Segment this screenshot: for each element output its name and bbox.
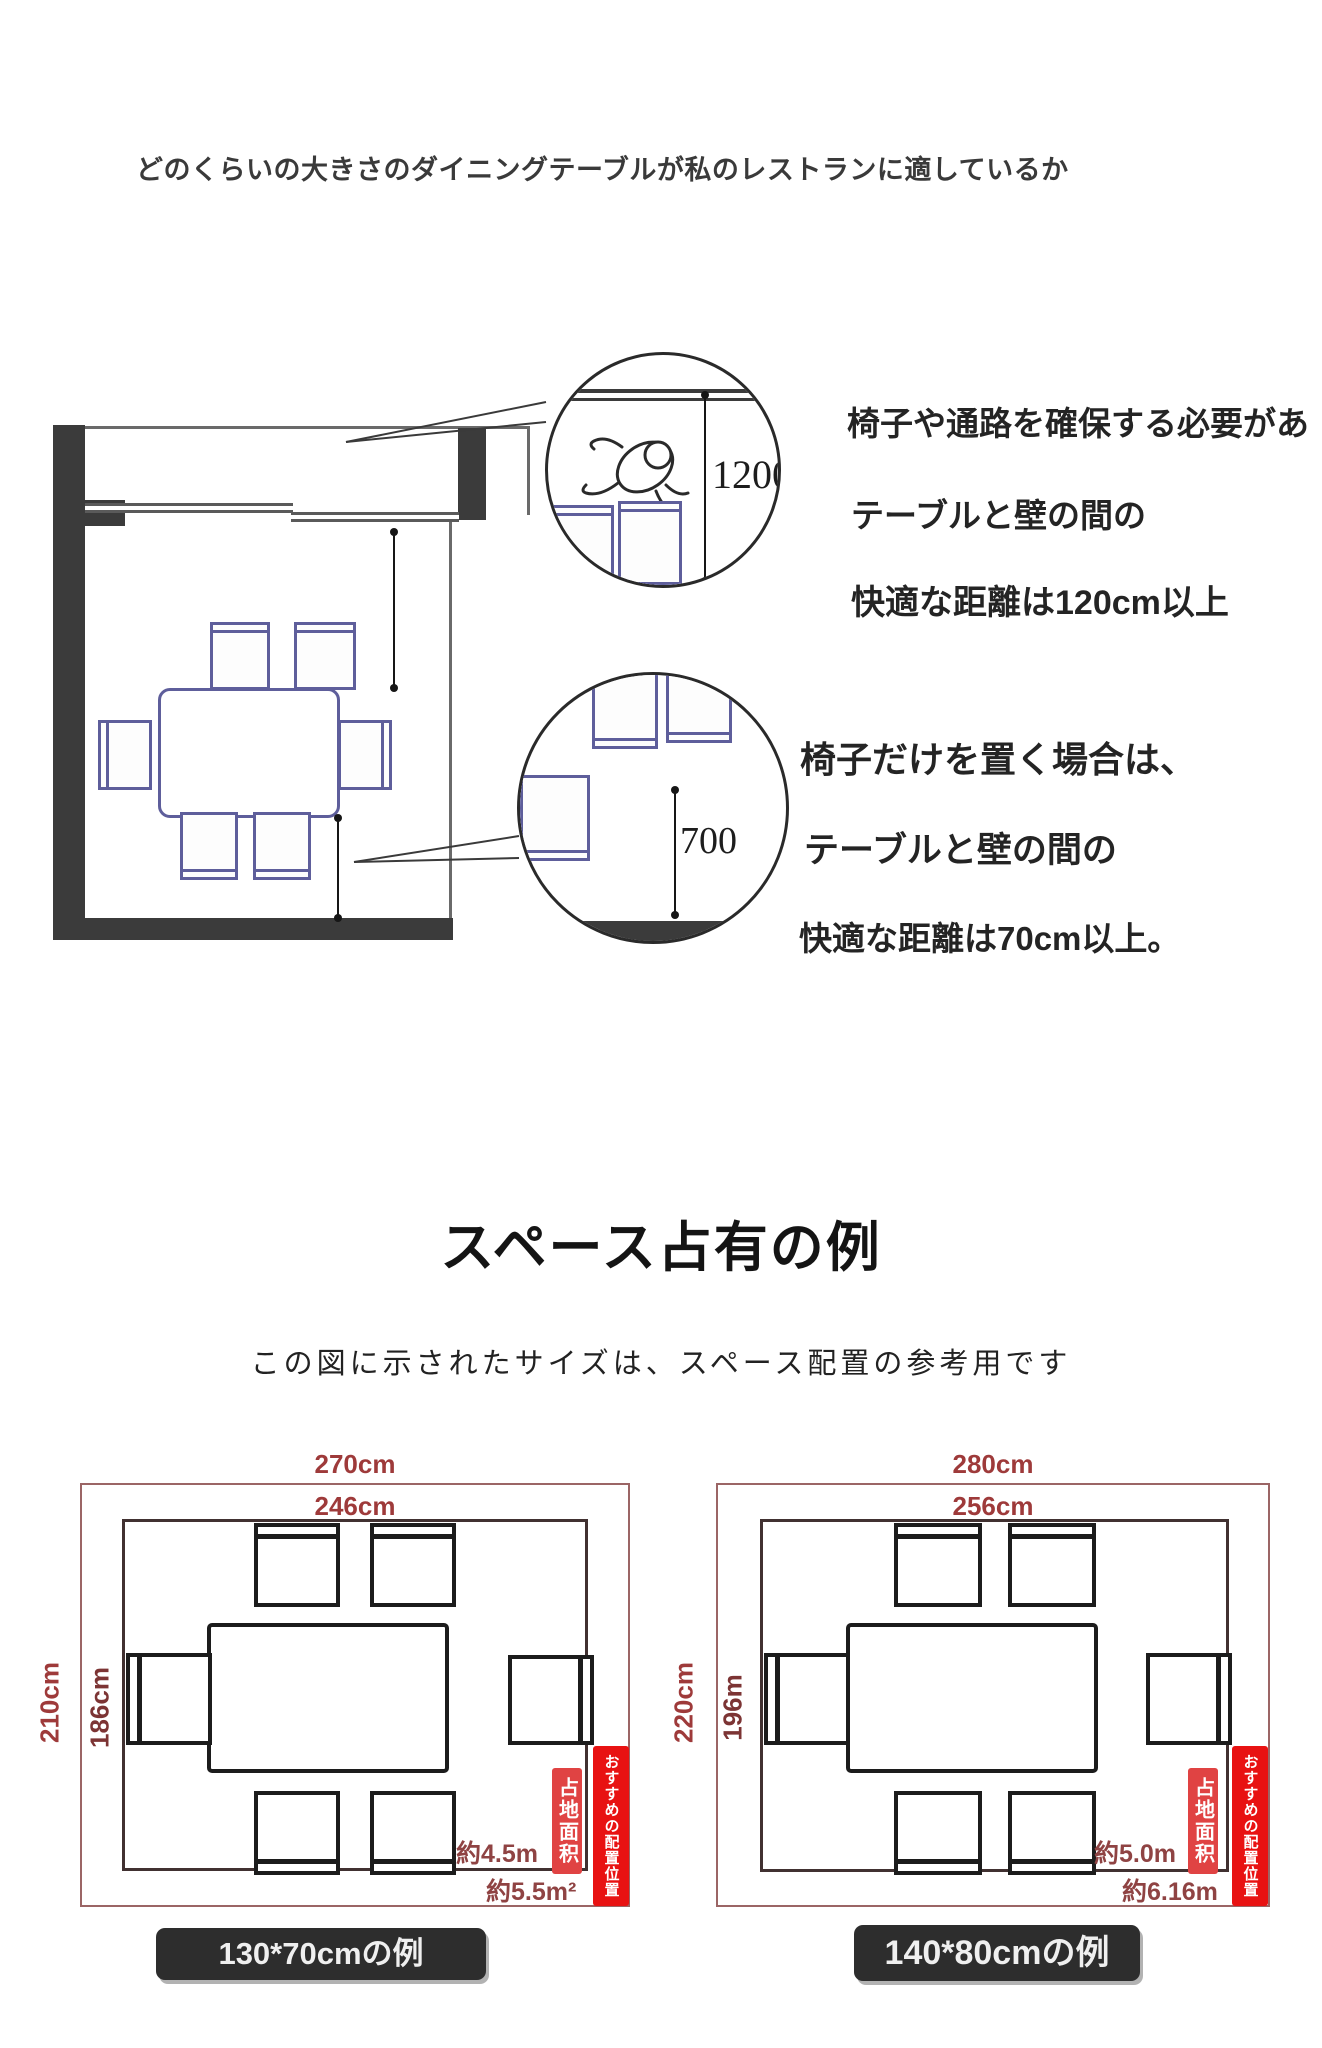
chair-top-2 <box>294 622 356 690</box>
chair-left <box>98 720 152 790</box>
chair-footprint <box>126 1653 212 1745</box>
chair-right <box>338 720 392 790</box>
chair-footprint <box>1008 1791 1096 1875</box>
wall-pillar <box>458 428 486 520</box>
space-diagram-140x80: 280cm 256cm 220cm 196m 約5.0m 約6.16m 占地面积… <box>716 1483 1270 1907</box>
inner-depth-label: 196m <box>718 1633 749 1783</box>
chair-bottom-1 <box>180 812 238 880</box>
diagram-caption: 130*70cmの例 <box>156 1928 486 1980</box>
inner-depth-label: 186cm <box>85 1633 116 1783</box>
inset-wall-clearance: 1200 <box>545 352 781 588</box>
area-label-small: 約4.5m <box>456 1834 538 1870</box>
wall-right-line <box>449 516 452 918</box>
inset-chair <box>520 775 590 861</box>
dimension-line-wall-to-table <box>393 532 395 688</box>
inset-chair-clearance: 700 <box>517 672 789 944</box>
inset-chair <box>618 501 682 585</box>
outer-width-label: 270cm <box>82 1449 628 1480</box>
chair-footprint <box>894 1791 982 1875</box>
window-line-b <box>291 512 459 522</box>
chair-footprint <box>370 1791 456 1875</box>
diagram-caption: 140*80cmの例 <box>854 1925 1140 1981</box>
chair-footprint <box>1146 1653 1232 1745</box>
note-chair-line2: テーブルと壁の間の <box>804 822 1117 873</box>
chair-footprint <box>894 1523 982 1607</box>
table-footprint <box>207 1623 449 1773</box>
dimension-label-700: 700 <box>680 819 737 863</box>
outer-depth-label: 220cm <box>669 1628 700 1778</box>
chair-footprint <box>508 1655 594 1745</box>
chair-footprint <box>254 1791 340 1875</box>
page-title: どのくらいの大きさのダイニングテーブルが私のレストランに適しているか <box>136 148 1069 187</box>
area-label-large: 約5.5m² <box>486 1872 576 1908</box>
note-aisle-line1: 椅子や通路を確保する必要があ <box>847 397 1309 445</box>
recommended-layout-badge: おすすめの配置位置 <box>1232 1746 1268 1906</box>
chair-footprint <box>764 1653 850 1745</box>
door-frame-line <box>527 427 530 515</box>
floor-area-badge: 占地面积 <box>552 1768 582 1874</box>
inset-chair <box>550 505 614 585</box>
space-diagram-130x70: 270cm 246cm 210cm 186cm 約4.5m 約5.5m² 占地面… <box>80 1483 630 1907</box>
chair-top-1 <box>210 622 270 690</box>
wall-left <box>53 425 85 940</box>
table-footprint <box>846 1623 1098 1773</box>
note-chair-line3: 快適な距離は70cm以上。 <box>799 912 1180 960</box>
note-chair-line1: 椅子だけを置く場合は、 <box>800 731 1196 783</box>
note-aisle-line3: 快適な距離は120cm以上 <box>851 575 1229 624</box>
area-label-small: 約5.0m <box>1094 1834 1176 1870</box>
inner-width-label: 246cm <box>82 1491 628 1522</box>
dimension-line-table-to-wall <box>337 818 339 918</box>
note-aisle-line2: テーブルと壁の間の <box>851 489 1146 537</box>
chair-footprint <box>1008 1523 1096 1607</box>
floor-area-badge: 占地面积 <box>1188 1768 1218 1874</box>
outer-depth-label: 210cm <box>35 1628 66 1778</box>
inset-chair <box>666 672 732 743</box>
chair-footprint <box>254 1523 340 1607</box>
dimension-label-1200: 1200 <box>712 451 781 498</box>
section-title: スペース占有の例 <box>0 1203 1322 1282</box>
recommended-layout-badge: おすすめの配置位置 <box>593 1746 629 1906</box>
inset-wall-bottom <box>517 921 789 944</box>
inset-dimension-line <box>674 790 676 915</box>
inner-width-label: 256cm <box>718 1491 1268 1522</box>
outer-width-label: 280cm <box>718 1449 1268 1480</box>
chair-footprint <box>370 1523 456 1607</box>
section-subtitle: この図に示されたサイズは、スペース配置の参考用です <box>0 1340 1322 1382</box>
wall-bottom <box>53 918 453 940</box>
wall-line <box>545 389 781 401</box>
area-label-large: 約6.16m <box>1122 1872 1218 1908</box>
window-line-a <box>85 503 293 513</box>
inset-dimension-line <box>704 395 706 581</box>
chair-bottom-2 <box>253 812 311 880</box>
dining-table <box>158 688 340 818</box>
infographic-page: どのくらいの大きさのダイニングテーブルが私のレストランに適しているか <box>0 0 1322 2048</box>
inset-chair <box>592 672 658 749</box>
